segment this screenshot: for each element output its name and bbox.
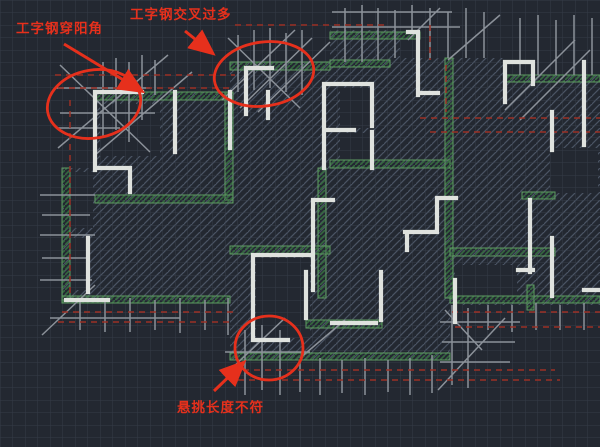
cad-viewport: 工字钢穿阳角 工字钢交叉过多 悬挑长度不符	[0, 0, 600, 447]
annotation-ibeam-through-corner: 工字钢穿阳角	[16, 20, 103, 37]
cad-canvas[interactable]: 工字钢穿阳角 工字钢交叉过多 悬挑长度不符	[0, 0, 600, 447]
annotation-ibeam-too-many-cross: 工字钢交叉过多	[130, 6, 232, 23]
annotation-cantilever-length: 悬挑长度不符	[177, 399, 264, 416]
